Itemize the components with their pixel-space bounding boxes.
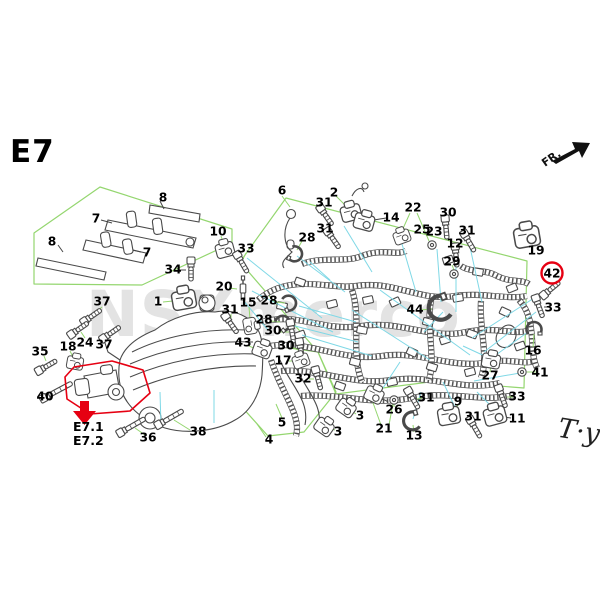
- part-number-label-29: 29: [443, 255, 460, 269]
- part-number-label-8: 8: [48, 235, 57, 249]
- part-number-label-12: 12: [446, 237, 463, 251]
- part-number-label-1: 1: [154, 295, 163, 309]
- part-number-label-15: 15: [239, 296, 256, 310]
- part-number-label-18: 18: [59, 340, 76, 354]
- part-number-label-38: 38: [189, 425, 206, 439]
- page-title: E7: [10, 134, 55, 170]
- part-number-label-41: 41: [531, 366, 548, 380]
- part-number-label-9: 9: [454, 395, 463, 409]
- fr-label: FR.: [539, 147, 563, 169]
- part-number-label-24: 24: [76, 336, 93, 350]
- part-glyph-25: [391, 225, 412, 246]
- part-glyph-35: [34, 357, 59, 376]
- artist-signature: T·y: [556, 413, 600, 450]
- part-number-label-34: 34: [164, 263, 181, 277]
- part-number-label-42: 42: [543, 267, 560, 281]
- part-glyph-29: [450, 270, 458, 278]
- part-number-label-20: 20: [215, 280, 232, 294]
- fr-direction-indicator: FR.: [539, 142, 590, 169]
- part-number-label-33: 33: [508, 390, 525, 404]
- part-glyph-41: [518, 368, 526, 376]
- part-number-label-11: 11: [508, 412, 525, 426]
- part-number-label-7: 7: [143, 246, 152, 260]
- part-number-label-5: 5: [278, 416, 287, 430]
- part-number-label-35: 35: [31, 345, 48, 359]
- part-glyph-32: [311, 365, 325, 390]
- part-number-label-30: 30: [277, 339, 294, 353]
- part-number-label-28: 28: [298, 231, 315, 245]
- part-number-label-23: 23: [425, 225, 442, 239]
- part-number-label-21: 21: [375, 422, 392, 436]
- detail-ref-e7-2: E7.2: [73, 433, 104, 448]
- part-number-label-40: 40: [36, 390, 53, 404]
- part-number-label-31: 31: [316, 222, 333, 236]
- part-number-label-7: 7: [92, 212, 101, 226]
- part-number-label-44: 44: [406, 303, 423, 317]
- part-number-label-32: 32: [294, 372, 311, 386]
- parts-diagram-page: NSXmerco 7887341372437351840363861033203…: [0, 0, 600, 600]
- part-number-label-31: 31: [458, 224, 475, 238]
- part-number-label-33: 33: [544, 301, 561, 315]
- part-number-label-31: 31: [417, 391, 434, 405]
- part-number-label-4: 4: [265, 433, 274, 447]
- part-number-label-28: 28: [260, 294, 277, 308]
- part-number-label-36: 36: [139, 431, 156, 445]
- part-number-label-8: 8: [159, 191, 168, 205]
- part-number-label-31: 31: [464, 410, 481, 424]
- part-number-label-37: 37: [95, 338, 112, 352]
- part-number-label-43: 43: [234, 336, 251, 350]
- part-number-label-6: 6: [278, 184, 287, 198]
- part-number-label-30: 30: [264, 324, 281, 338]
- detail-ref-e7-1: E7.1: [73, 419, 104, 434]
- part-number-label-26: 26: [385, 403, 402, 417]
- part-number-label-30: 30: [439, 206, 456, 220]
- part-number-label-10: 10: [209, 225, 226, 239]
- part-number-label-14: 14: [382, 211, 399, 225]
- part-number-label-16: 16: [524, 344, 541, 358]
- part-glyph-23: [428, 241, 436, 249]
- part-number-label-27: 27: [481, 369, 498, 383]
- part-number-label-13: 13: [405, 429, 422, 443]
- part-number-label-3: 3: [334, 425, 343, 439]
- part-number-label-37: 37: [93, 295, 110, 309]
- part-number-label-33: 33: [237, 242, 254, 256]
- part-number-label-31: 31: [315, 196, 332, 210]
- part-number-label-19: 19: [527, 244, 544, 258]
- part-glyph-18: [66, 352, 85, 371]
- part-number-label-31: 31: [221, 303, 238, 317]
- diagram-canvas: NSXmerco 7887341372437351840363861033203…: [0, 0, 600, 600]
- part-number-label-22: 22: [404, 201, 421, 215]
- part-number-label-3: 3: [356, 409, 365, 423]
- part-number-label-17: 17: [274, 354, 291, 368]
